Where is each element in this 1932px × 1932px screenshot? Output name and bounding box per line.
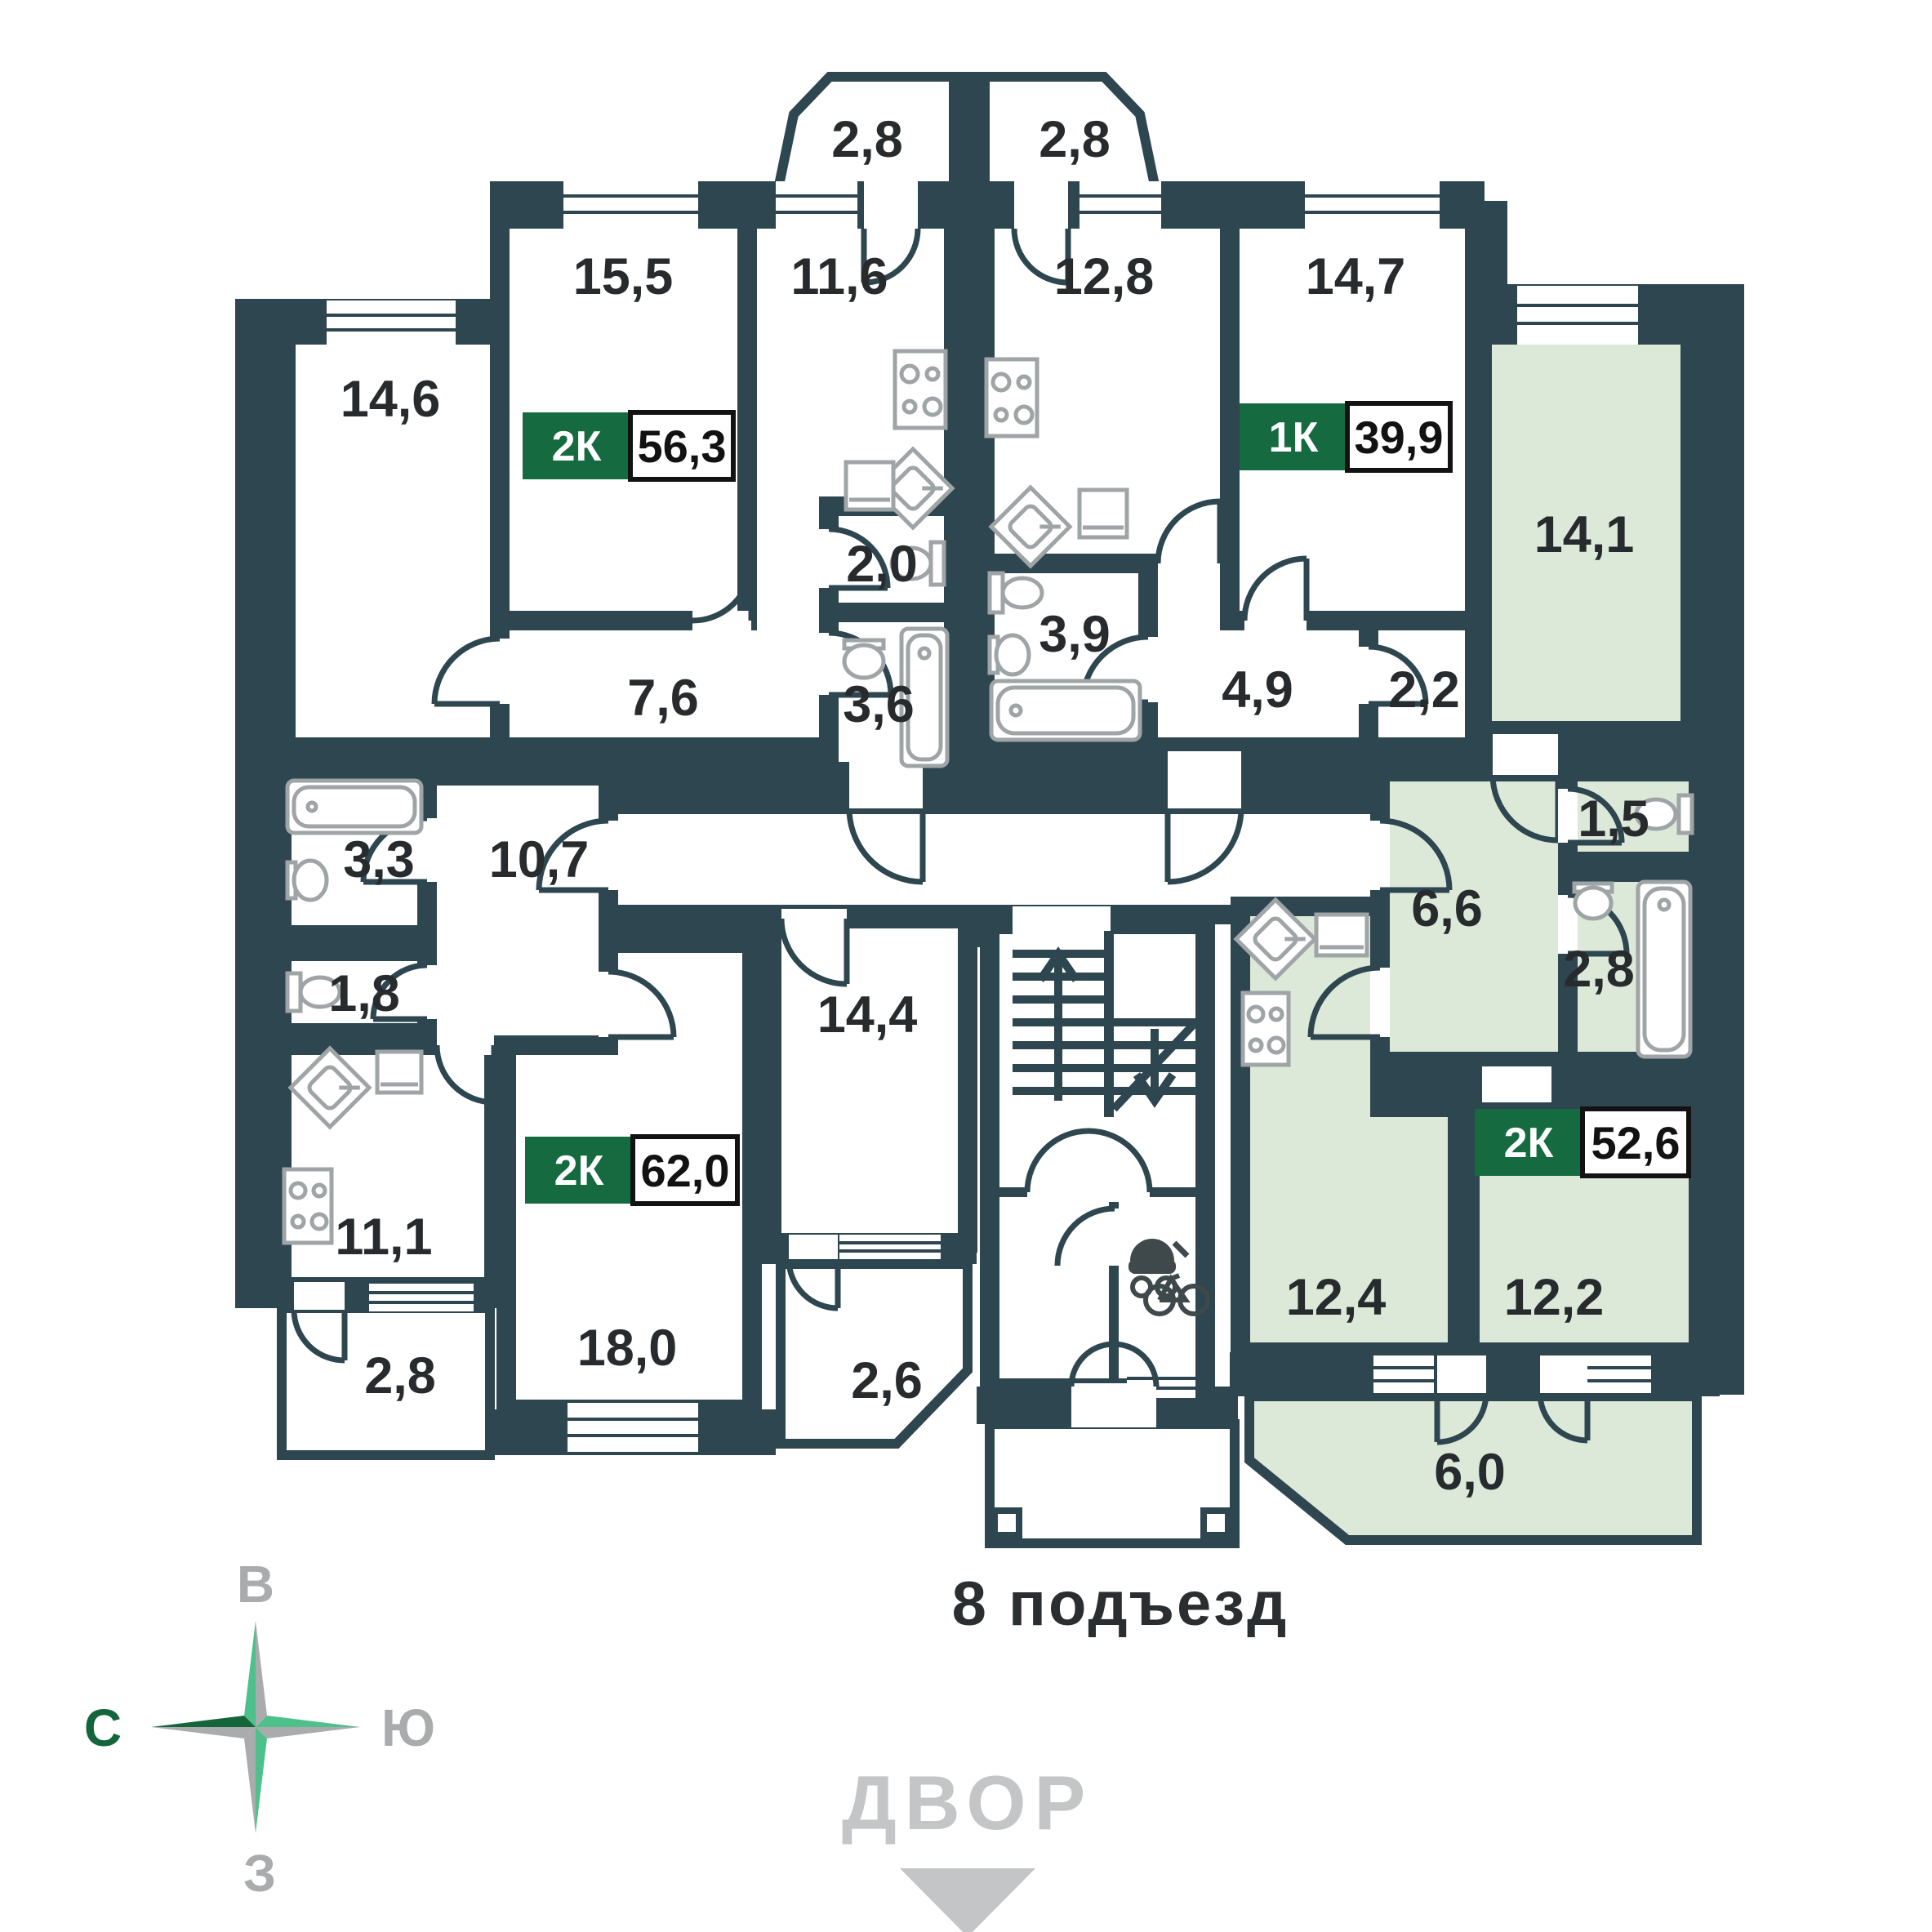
stove-icon [895, 351, 946, 428]
room-area-label: 3,6 [843, 676, 915, 733]
window [1305, 181, 1440, 229]
stove-icon [1243, 993, 1289, 1065]
bathtub-icon [991, 681, 1140, 740]
room-area-label: 6,0 [1434, 1444, 1506, 1501]
entrance-porch [990, 1424, 1235, 1543]
room-area-label: 3,9 [1039, 606, 1111, 663]
window [1517, 286, 1638, 345]
room-area-label: 1,5 [1578, 790, 1649, 848]
stove-icon [284, 1169, 332, 1243]
porch-column [1204, 1511, 1228, 1535]
room-area-label: 4,9 [1222, 661, 1293, 719]
room-area-label: 14,1 [1534, 506, 1635, 563]
apartment-area-label: 62,0 [641, 1145, 730, 1196]
room-area-label: 3,3 [343, 831, 415, 888]
room-area-label: 12,8 [1054, 248, 1155, 305]
bathtub-icon [287, 781, 421, 833]
apartment-type-label: 2К [554, 1147, 604, 1195]
apartment-badge-2k-52[interactable]: 2К 52,6 [1475, 1109, 1689, 1176]
porch-column [995, 1511, 1019, 1535]
apartment-badge-2k-56[interactable]: 2К 56,3 [523, 412, 733, 479]
room-area-label: 1,8 [328, 965, 400, 1022]
sink-icon [287, 861, 327, 900]
sink-icon [990, 635, 1029, 674]
apartment-area-label: 39,9 [1355, 412, 1444, 463]
courtyard: ДВОР [842, 1760, 1093, 1932]
fridge-icon [377, 1052, 421, 1093]
sink-icon [844, 640, 884, 678]
room-area-label: 7,6 [627, 670, 699, 727]
fridge-icon [846, 462, 893, 510]
room-area-label: 14,6 [341, 371, 441, 428]
room-area-label: 2,0 [846, 536, 918, 593]
window [369, 1284, 474, 1311]
room-area-label: 12,4 [1286, 1269, 1387, 1326]
room-area-label: 2,8 [1563, 941, 1635, 998]
courtyard-arrow-icon [900, 1868, 1035, 1932]
room-area-label: 14,7 [1306, 248, 1406, 305]
room-area-label: 11,6 [790, 248, 888, 305]
bathtub-icon [1638, 882, 1690, 1057]
window [1373, 1356, 1434, 1393]
stairwell [990, 924, 1205, 1388]
room-area-label: 11,1 [335, 1209, 432, 1266]
room-area-label: 10,7 [489, 831, 590, 888]
window [1080, 181, 1161, 229]
room-area-label: 2,2 [1388, 661, 1460, 719]
window [327, 300, 456, 346]
window [776, 181, 857, 229]
room-area-label: 2,8 [364, 1347, 436, 1404]
courtyard-label: ДВОР [842, 1760, 1093, 1845]
room-area-label: 2,8 [831, 111, 903, 168]
apartment-badge-1k-39[interactable]: 1К 39,9 [1240, 403, 1450, 470]
window [563, 181, 698, 229]
room-area-label: 14,4 [817, 986, 918, 1044]
fridge-icon [1080, 490, 1127, 537]
floor-plan: 2К 56,3 1К 39,9 2К 62,0 2К 52,6 2,8 2,8 … [0, 0, 1932, 1932]
compass-west-label: З [243, 1844, 276, 1903]
room-area-label: 2,6 [851, 1352, 923, 1409]
floor-plan-page: 2К 56,3 1К 39,9 2К 62,0 2К 52,6 2,8 2,8 … [0, 0, 1932, 1932]
compass-east-label: В [237, 1555, 274, 1614]
window [1587, 1356, 1651, 1393]
stove-icon [986, 359, 1037, 436]
window [568, 1403, 698, 1452]
sink-icon [1574, 884, 1612, 919]
room-strip [747, 506, 829, 621]
apartment-type-label: 2К [552, 423, 602, 470]
room-area-label: 15,5 [573, 248, 674, 305]
apartment-area-label: 56,3 [638, 421, 727, 472]
apartment-type-label: 2К [1504, 1120, 1554, 1167]
room-area-label: 12,2 [1504, 1269, 1605, 1326]
room-area-label: 6,6 [1411, 880, 1483, 937]
apartment-area-label: 52,6 [1591, 1117, 1680, 1169]
room-area-label: 18,0 [577, 1320, 678, 1377]
fridge-icon [1316, 915, 1367, 955]
room-area-label: 2,8 [1039, 111, 1111, 168]
toilet-icon [990, 573, 1042, 612]
room-10-7 [427, 776, 608, 1045]
apartment-type-label: 1К [1269, 414, 1319, 461]
compass-rose: В С Ю З [84, 1555, 435, 1903]
apartment-badge-2k-62[interactable]: 2К 62,0 [525, 1137, 737, 1204]
compass-south-label: Ю [381, 1698, 435, 1757]
window [839, 1235, 941, 1259]
entrance-label: 8 подъезд [952, 1569, 1289, 1639]
compass-north-label: С [84, 1698, 122, 1757]
